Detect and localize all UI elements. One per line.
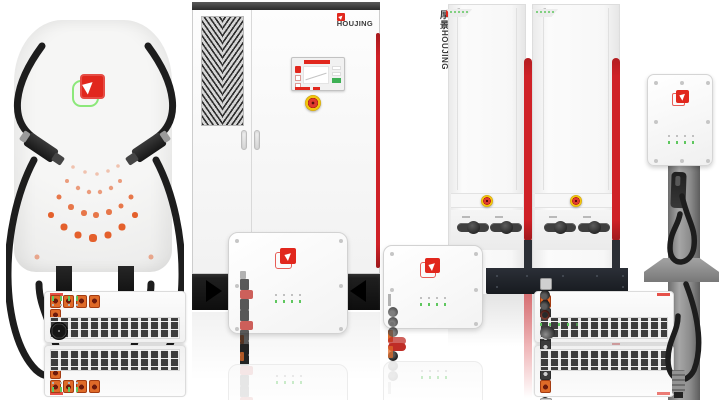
connector-orange (89, 295, 100, 308)
connector-gray (240, 271, 246, 279)
logo-red-square: ▶ (80, 74, 105, 99)
rack-module-stack (457, 8, 517, 190)
screen-field (332, 72, 341, 76)
brand-logo-icon: ▶ (278, 248, 300, 270)
cabinet-top-strip (192, 2, 380, 10)
charger-foot (56, 266, 72, 294)
ventilation-grille (201, 16, 244, 126)
logo-arrow-icon: ▶ (283, 251, 293, 261)
vent-right-half (223, 17, 244, 125)
emergency-stop-button (305, 95, 321, 111)
battery-module (458, 8, 460, 10)
logo-red-square: ▶ (280, 248, 296, 264)
emergency-stop-button (570, 195, 582, 207)
connector-orange (540, 380, 551, 393)
brand-logo-icon: ▶ (72, 74, 108, 108)
status-leds (419, 297, 447, 308)
rotary-switch (578, 223, 610, 232)
battery-module (544, 8, 546, 10)
connector-black (240, 310, 249, 321)
rotary-switch (457, 223, 489, 232)
rack-module-stack (543, 8, 609, 190)
round-connectors (540, 309, 552, 320)
estop-strip (535, 193, 617, 208)
screen-ok-button (332, 78, 341, 83)
logo-red-square: ▶ (425, 258, 440, 273)
estop-strip (451, 193, 523, 208)
product-lineup-image: ▶ HOUJING (0, 0, 719, 400)
connector-round-black (540, 290, 550, 300)
connector-orange (240, 352, 244, 361)
module-led-notch (532, 9, 558, 17)
status-leds-reflection (275, 375, 303, 386)
rack-tower (532, 4, 620, 268)
adjustment-knob (540, 326, 555, 339)
connector-row (50, 375, 180, 393)
inverter-reflection (228, 364, 348, 400)
screen-footer-bar (313, 87, 320, 90)
connector-gray (388, 300, 391, 306)
status-leds (274, 294, 302, 305)
brand-logo-icon: ▶ (423, 258, 444, 279)
power-module-unit-left (44, 291, 186, 399)
connector-red (240, 321, 253, 330)
hmi-touchscreen (291, 57, 345, 91)
stripe-reflection (524, 294, 532, 398)
ventilation-grille (50, 317, 180, 339)
connector-black (240, 279, 249, 290)
charging-cable (644, 70, 719, 400)
wallbox-charger-group: ▶ (644, 70, 719, 400)
orange-connector-group (50, 295, 180, 308)
ventilation-grille (50, 349, 180, 371)
status-leds (540, 323, 542, 326)
connector-round-black (388, 317, 398, 327)
screen-header-bar (304, 60, 330, 64)
indicator-dot-arcs (6, 18, 8, 20)
connector-row (50, 295, 180, 313)
rack-tower (448, 4, 526, 268)
status-leds-reflection (420, 370, 448, 381)
connector-round-black (388, 327, 398, 337)
rotary-switch (490, 223, 522, 232)
door-handle (254, 130, 260, 150)
power-module-reflection (44, 345, 186, 397)
module-led-notch (446, 9, 472, 17)
connector-orange (63, 295, 74, 308)
screw-icons (390, 252, 394, 256)
connector-red (388, 337, 406, 345)
screen-button (295, 75, 301, 81)
screw-icons (235, 239, 239, 243)
breaker-panel (451, 210, 523, 250)
cooling-fan (50, 322, 68, 340)
connector-black (240, 330, 249, 341)
brand-logo-lockup: HOUJING (337, 13, 373, 22)
charging-gun-tip (672, 370, 685, 394)
connector-silver-socket (540, 278, 552, 290)
charger-foot (118, 266, 134, 294)
screen-logo-block (295, 66, 301, 73)
spacer (388, 345, 393, 346)
screen-chart-area (303, 66, 329, 84)
red-accent-stripe (524, 58, 532, 242)
connector-reflection (240, 349, 253, 361)
connector-orange (89, 380, 100, 393)
connector-black (240, 341, 249, 352)
connector-orange (63, 380, 74, 393)
connector-black (240, 299, 249, 310)
output-connector-cluster (540, 309, 598, 326)
connector-orange (76, 295, 87, 308)
red-accent-stripe (612, 58, 620, 242)
connector-round-black (540, 300, 550, 310)
inverter-reflection (383, 361, 483, 400)
spacer (388, 306, 393, 307)
rotary-switch (544, 223, 576, 232)
door-handle (241, 130, 247, 150)
vent-left-half (202, 17, 223, 125)
screen-footer-bar (295, 87, 310, 90)
connector-gray (388, 294, 391, 300)
logo-arrow-icon: ▶ (427, 260, 437, 270)
connector-orange (388, 346, 393, 358)
brand-logo-icon (337, 13, 345, 21)
red-accent-stripe (376, 33, 380, 268)
connector-red (240, 290, 253, 299)
wall-inverter-large: ▶ (228, 232, 348, 400)
screen-field (332, 66, 341, 70)
wall-inverter-small: ▶ (383, 245, 483, 400)
breaker-panel (535, 210, 617, 250)
orange-connector-group (50, 380, 180, 393)
connector-reflection (388, 345, 406, 358)
connector-orange (76, 380, 87, 393)
connector-round-black (388, 307, 398, 317)
emergency-stop-button (481, 195, 493, 207)
spacer (540, 339, 545, 340)
